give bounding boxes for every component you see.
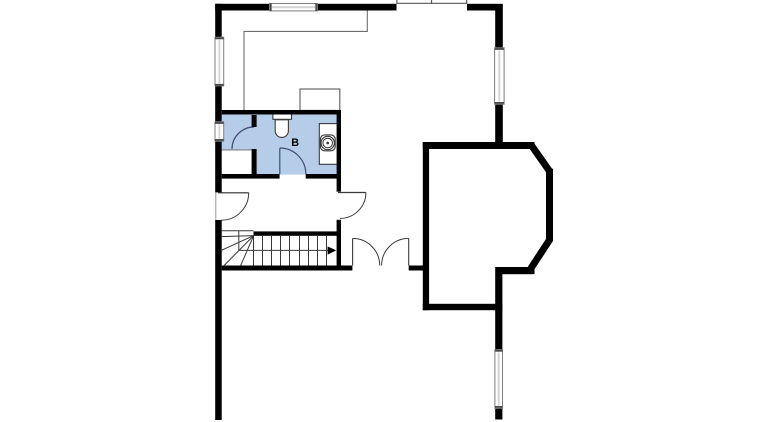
svg-text:B: B	[291, 137, 299, 149]
